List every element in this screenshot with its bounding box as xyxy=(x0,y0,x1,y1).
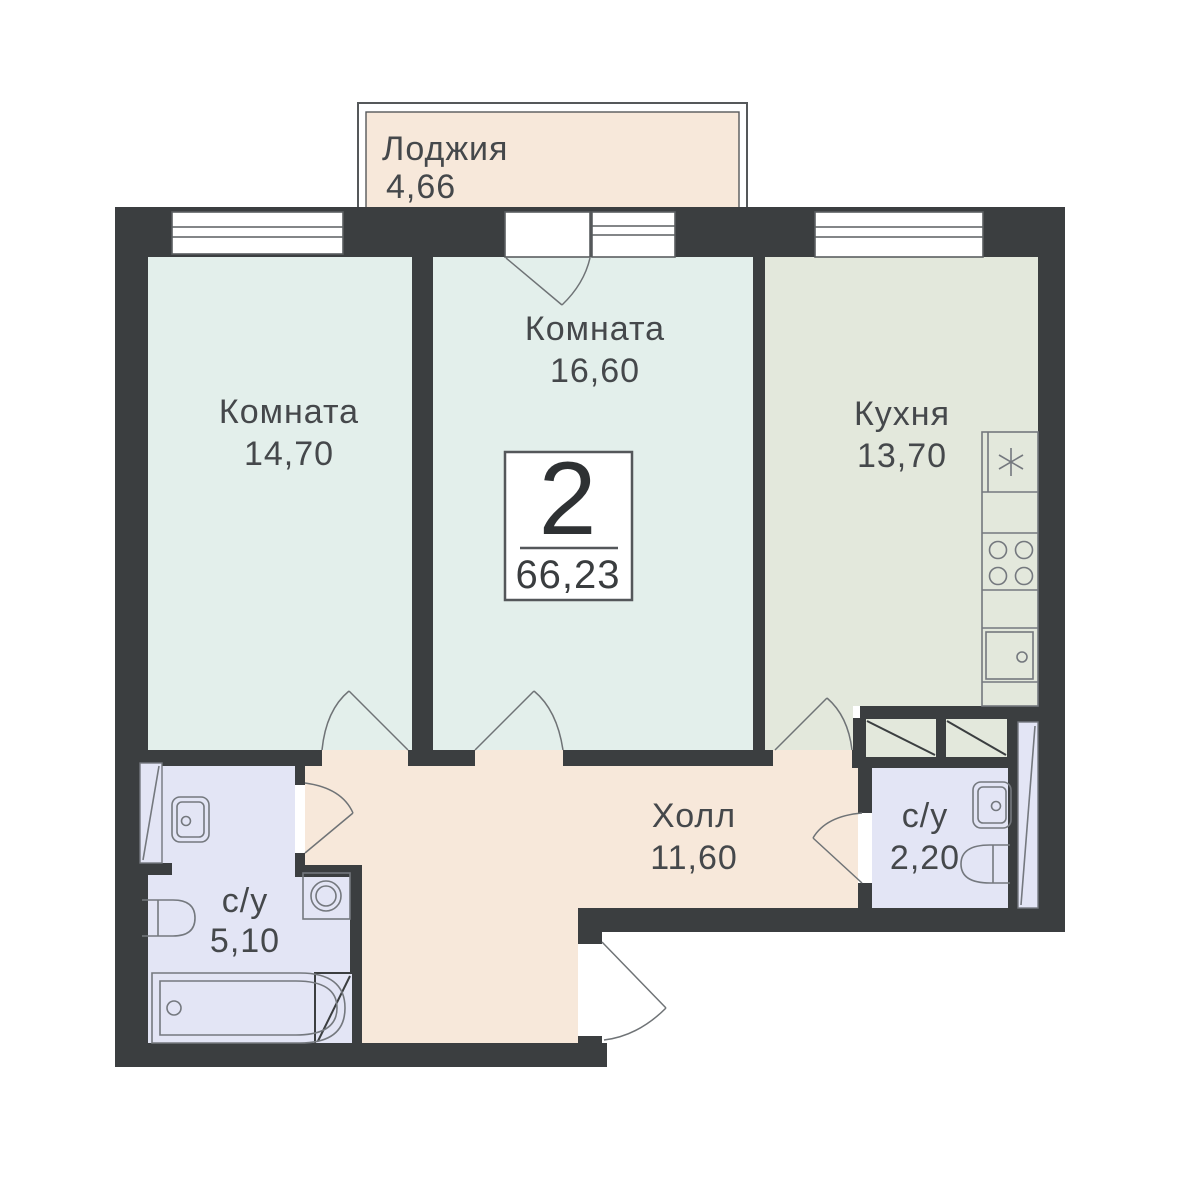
room-middle-name: Комната xyxy=(525,310,665,348)
windows xyxy=(172,212,983,257)
floorplan-page: Лоджия 4,66 xyxy=(0,0,1181,1181)
door-entrance xyxy=(602,942,666,1040)
loggia: Лоджия 4,66 xyxy=(358,103,747,209)
doorway-floor xyxy=(322,750,408,766)
floorplan-drawing: Лоджия 4,66 xyxy=(0,0,1181,1181)
window-room-left xyxy=(172,212,343,254)
bathroom-large-floor xyxy=(148,765,295,877)
room-left-name: Комната xyxy=(219,393,359,431)
bath-large-name: с/у xyxy=(222,882,268,920)
room-middle-area: 16,60 xyxy=(550,352,640,390)
badge-total-area: 66,23 xyxy=(515,553,620,597)
kitchen-floor xyxy=(765,257,1038,750)
bath-small-area: 2,20 xyxy=(890,839,960,877)
window-kitchen xyxy=(815,212,983,257)
doorway-floor xyxy=(475,750,563,766)
hall-name: Холл xyxy=(652,797,736,835)
badge-room-count: 2 xyxy=(539,441,598,557)
bath-large-area: 5,10 xyxy=(210,922,280,960)
room-left-floor xyxy=(148,257,412,750)
kitchen-name: Кухня xyxy=(854,395,950,433)
loggia-name: Лоджия xyxy=(382,130,508,168)
hall-area: 11,60 xyxy=(650,839,738,877)
loggia-area: 4,66 xyxy=(386,168,456,206)
bath-small-name: с/у xyxy=(902,797,948,835)
kitchen-area: 13,70 xyxy=(857,437,947,475)
window-room-middle xyxy=(592,212,675,257)
room-left-area: 14,70 xyxy=(244,435,334,473)
doorway-floor xyxy=(773,750,852,766)
hall-floor xyxy=(305,765,858,1043)
balcony-door-opening xyxy=(505,212,590,257)
apartment-badge: 2 66,23 xyxy=(505,441,632,600)
